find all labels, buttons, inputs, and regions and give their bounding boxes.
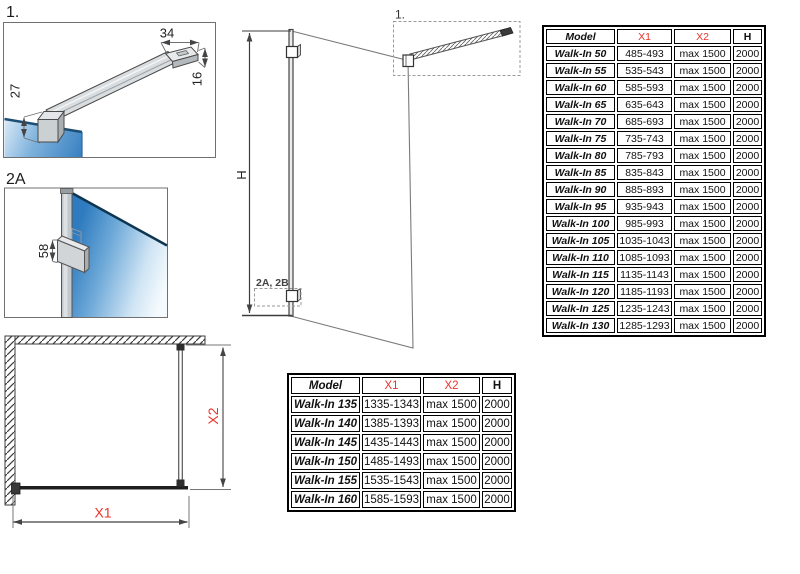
value-cell: 585-593: [617, 80, 672, 95]
model-cell: Walk-In 85: [546, 165, 615, 180]
table-row: Walk-In 90885-893max 15002000: [546, 182, 762, 197]
main-elevation-drawing: H 1. 2A, 2B: [230, 0, 550, 360]
value-cell: 835-843: [617, 165, 672, 180]
value-cell: max 1500: [423, 434, 480, 451]
value-cell: max 1500: [674, 301, 731, 316]
glass-panel-plan: [15, 486, 188, 490]
value-cell: 2000: [733, 318, 762, 333]
col-header-x1: X1: [362, 377, 421, 394]
table-row: Walk-In 50485-493max 15002000: [546, 46, 762, 61]
detail-2a-label: 2A: [6, 171, 26, 188]
value-cell: 1435-1443: [362, 434, 421, 451]
table-row: Walk-In 85835-843max 15002000: [546, 165, 762, 180]
table-row: Walk-In 1151135-1143max 15002000: [546, 267, 762, 282]
profile-bracket-top: [287, 45, 301, 58]
detail-2ab-callout-label: 2A, 2B: [256, 277, 289, 289]
value-cell: 2000: [733, 250, 762, 265]
profile-bracket-bottom: [287, 289, 301, 302]
value-cell: max 1500: [423, 415, 480, 432]
value-cell: 935-943: [617, 199, 672, 214]
glass-clamp: [403, 55, 414, 67]
value-cell: 2000: [733, 97, 762, 112]
header-row: ModelX1X2H: [546, 29, 762, 44]
spec-table-large: ModelX1X2H Walk-In 50485-493max 15002000…: [542, 25, 766, 337]
value-cell: max 1500: [674, 267, 731, 282]
value-cell: 2000: [733, 301, 762, 316]
table-row: Walk-In 1051035-1043max 15002000: [546, 233, 762, 248]
value-cell: 1085-1093: [617, 250, 672, 265]
col-header-x2: X2: [674, 29, 731, 44]
model-cell: Walk-In 105: [546, 233, 615, 248]
table-row: Walk-In 1601585-1593max 15002000: [291, 491, 512, 508]
table-row: Walk-In 70685-693max 15002000: [546, 114, 762, 129]
model-cell: Walk-In 60: [546, 80, 615, 95]
top-wall-section: [15, 336, 205, 344]
value-cell: 2000: [733, 233, 762, 248]
col-header-model: Model: [546, 29, 615, 44]
glass-clamp-block: [38, 112, 64, 143]
value-cell: 1035-1043: [617, 233, 672, 248]
value-cell: 2000: [482, 453, 512, 470]
table-row: Walk-In 1251235-1243max 15002000: [546, 301, 762, 316]
value-cell: 1585-1593: [362, 491, 421, 508]
model-cell: Walk-In 135: [291, 396, 360, 413]
wall-profile: [289, 30, 293, 317]
dim-27-text: 27: [8, 84, 23, 98]
value-cell: max 1500: [674, 216, 731, 231]
table-row: Walk-In 95935-943max 15002000: [546, 199, 762, 214]
value-cell: 2000: [733, 46, 762, 61]
table-row: Walk-In 1351335-1343max 15002000: [291, 396, 512, 413]
value-cell: 1485-1493: [362, 453, 421, 470]
table-row: Walk-In 1201185-1193max 15002000: [546, 284, 762, 299]
col-header-h: H: [733, 29, 762, 44]
col-header-x1: X1: [617, 29, 672, 44]
value-cell: 2000: [733, 63, 762, 78]
model-cell: Walk-In 110: [546, 250, 615, 265]
table-row: Walk-In 1401385-1393max 15002000: [291, 415, 512, 432]
model-cell: Walk-In 140: [291, 415, 360, 432]
value-cell: 735-743: [617, 131, 672, 146]
value-cell: max 1500: [423, 453, 480, 470]
value-cell: max 1500: [674, 284, 731, 299]
value-cell: 2000: [482, 415, 512, 432]
dim-h-text: H: [234, 170, 249, 179]
value-cell: 2000: [733, 80, 762, 95]
model-cell: Walk-In 90: [546, 182, 615, 197]
model-cell: Walk-In 120: [546, 284, 615, 299]
model-cell: Walk-In 160: [291, 491, 360, 508]
value-cell: 2000: [733, 284, 762, 299]
value-cell: 785-793: [617, 148, 672, 163]
value-cell: 2000: [482, 396, 512, 413]
value-cell: max 1500: [423, 396, 480, 413]
table-row: Walk-In 1301285-1293max 15002000: [546, 318, 762, 333]
value-cell: max 1500: [674, 318, 731, 333]
value-cell: 2000: [733, 165, 762, 180]
col-header-x2: X2: [423, 377, 480, 394]
model-cell: Walk-In 95: [546, 199, 615, 214]
table-row: Walk-In 60585-593max 15002000: [546, 80, 762, 95]
dim-34-text: 34: [160, 26, 174, 41]
model-cell: Walk-In 75: [546, 131, 615, 146]
value-cell: max 1500: [674, 63, 731, 78]
value-cell: 2000: [482, 434, 512, 451]
header-row: ModelX1X2H: [291, 377, 512, 394]
model-cell: Walk-In 130: [546, 318, 615, 333]
value-cell: max 1500: [674, 114, 731, 129]
support-bar: [403, 28, 513, 67]
value-cell: 1185-1193: [617, 284, 672, 299]
value-cell: 635-643: [617, 97, 672, 112]
value-cell: max 1500: [674, 182, 731, 197]
value-cell: 2000: [733, 216, 762, 231]
model-cell: Walk-In 70: [546, 114, 615, 129]
value-cell: 985-993: [617, 216, 672, 231]
dim-16-text: 16: [190, 72, 205, 86]
value-cell: 2000: [733, 182, 762, 197]
detail-2a-drawing: 2A 58: [0, 160, 200, 325]
model-cell: Walk-In 150: [291, 453, 360, 470]
value-cell: max 1500: [674, 97, 731, 112]
value-cell: 685-693: [617, 114, 672, 129]
dim-58-text: 58: [36, 244, 51, 258]
value-cell: 485-493: [617, 46, 672, 61]
side-wall-section: [5, 336, 15, 505]
dimension-h: H: [234, 31, 292, 316]
value-cell: 885-893: [617, 182, 672, 197]
value-cell: max 1500: [674, 80, 731, 95]
table-row: Walk-In 80785-793max 15002000: [546, 148, 762, 163]
spec-table-small: ModelX1X2H Walk-In 1351335-1343max 15002…: [287, 373, 516, 512]
dimension-x2: X2: [186, 345, 231, 490]
value-cell: max 1500: [674, 131, 731, 146]
support-bar-plan: [177, 344, 185, 487]
wall-mount-block: [500, 28, 513, 37]
wall-profile-plan: [12, 483, 21, 494]
model-cell: Walk-In 145: [291, 434, 360, 451]
table-row: Walk-In 1551535-1543max 15002000: [291, 472, 512, 489]
value-cell: 1535-1543: [362, 472, 421, 489]
table-row: Walk-In 1101085-1093max 15002000: [546, 250, 762, 265]
value-cell: max 1500: [423, 491, 480, 508]
dimension-x1: X1: [13, 496, 189, 528]
model-cell: Walk-In 55: [546, 63, 615, 78]
table-row: Walk-In 75735-743max 15002000: [546, 131, 762, 146]
model-cell: Walk-In 115: [546, 267, 615, 282]
value-cell: 1235-1243: [617, 301, 672, 316]
value-cell: 2000: [733, 267, 762, 282]
value-cell: max 1500: [674, 165, 731, 180]
value-cell: max 1500: [674, 46, 731, 61]
table-row: Walk-In 1501485-1493max 15002000: [291, 453, 512, 470]
col-header-h: H: [482, 377, 512, 394]
value-cell: max 1500: [674, 233, 731, 248]
value-cell: 1285-1293: [617, 318, 672, 333]
col-header-model: Model: [291, 377, 360, 394]
model-cell: Walk-In 155: [291, 472, 360, 489]
technical-drawing-page: 1. 27: [0, 0, 800, 574]
model-cell: Walk-In 80: [546, 148, 615, 163]
glass-panel-outline: [291, 31, 414, 348]
value-cell: 1135-1143: [617, 267, 672, 282]
dim-x1-text: X1: [94, 505, 111, 521]
value-cell: max 1500: [674, 199, 731, 214]
table-row: Walk-In 55535-543max 15002000: [546, 63, 762, 78]
value-cell: 535-543: [617, 63, 672, 78]
plan-view-drawing: X2 X1: [0, 320, 245, 574]
value-cell: max 1500: [674, 148, 731, 163]
value-cell: 1335-1343: [362, 396, 421, 413]
model-cell: Walk-In 100: [546, 216, 615, 231]
value-cell: 2000: [482, 472, 512, 489]
model-cell: Walk-In 125: [546, 301, 615, 316]
value-cell: 2000: [733, 199, 762, 214]
value-cell: max 1500: [423, 472, 480, 489]
value-cell: 1385-1393: [362, 415, 421, 432]
value-cell: 2000: [733, 114, 762, 129]
table-row: Walk-In 1451435-1443max 15002000: [291, 434, 512, 451]
detail-1-drawing: 1. 27: [0, 0, 232, 168]
value-cell: max 1500: [674, 250, 731, 265]
value-cell: 2000: [733, 131, 762, 146]
model-cell: Walk-In 50: [546, 46, 615, 61]
detail-1-label: 1.: [6, 4, 19, 21]
value-cell: 2000: [733, 148, 762, 163]
detail-1-callout-label: 1.: [395, 8, 405, 22]
table-row: Walk-In 65635-643max 15002000: [546, 97, 762, 112]
dim-x2-text: X2: [205, 407, 221, 424]
model-cell: Walk-In 65: [546, 97, 615, 112]
table-row: Walk-In 100985-993max 15002000: [546, 216, 762, 231]
value-cell: 2000: [482, 491, 512, 508]
